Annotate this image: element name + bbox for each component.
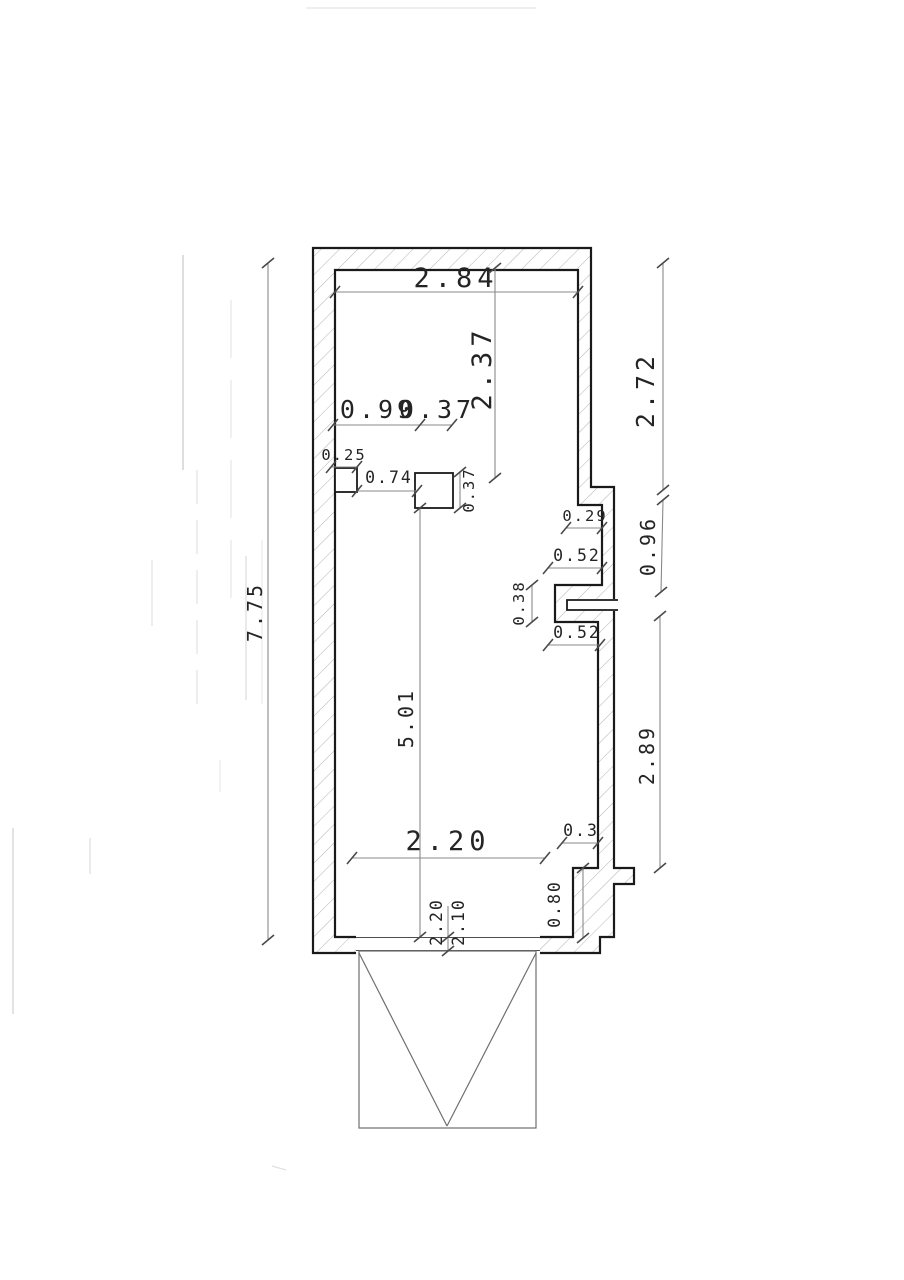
dim-label: 0.25 — [321, 446, 366, 464]
dim-label: 0.3 — [563, 821, 599, 840]
free-column — [415, 473, 453, 508]
dimension-flue-offset: 0.29 — [561, 507, 608, 534]
dimension-flue-lower-width: 0.52 — [543, 623, 605, 651]
dim-label: 0.96 — [636, 516, 660, 576]
dim-label: 2.20 — [405, 826, 490, 857]
dimension-left-total-height: 7.75 — [243, 258, 274, 945]
dim-label: 2.89 — [635, 725, 659, 785]
garage-door-panel — [359, 951, 536, 1128]
dimension-bottom-right-offset: 0.3 — [557, 821, 603, 849]
dimension-right-lower-height: 2.89 — [635, 611, 666, 873]
dim-label: 0.80 — [545, 880, 564, 928]
scan-artifacts — [13, 8, 536, 1170]
dimension-column-depth: 0.37 — [454, 467, 478, 513]
floor-plan-drawing: 2.84 2.37 0.99 0.37 0.25 0.74 0.37 0.29 … — [0, 0, 904, 1280]
dimension-top-interior-height: 2.37 — [467, 263, 501, 483]
dim-line — [661, 500, 663, 592]
dim-label: 5.01 — [394, 688, 418, 748]
dimension-niche-gap: 0.74 — [352, 468, 422, 497]
scan-streak — [272, 1166, 286, 1170]
dimension-offsets-a-b: 0.99 0.37 — [328, 395, 475, 431]
dimension-right-flue-height: 0.96 — [636, 495, 669, 597]
dim-label: 0.29 — [562, 507, 607, 525]
dimension-flue-slot-height: 0.38 — [510, 580, 538, 627]
dimension-bottom-interior-width: 2.20 — [347, 826, 550, 864]
dim-label: 0.52 — [553, 623, 601, 642]
dim-label: 2.20 — [427, 898, 446, 946]
dim-label: 2.72 — [631, 352, 660, 428]
dimension-right-upper-height: 2.72 — [631, 258, 669, 495]
dim-label: 0.74 — [365, 468, 413, 487]
dimension-interior-length: 5.01 — [394, 503, 426, 942]
dim-label: 0.37 — [399, 395, 475, 424]
dim-label: 0.38 — [510, 580, 528, 625]
dimension-flue-upper-width: 0.52 — [543, 546, 607, 574]
garage-door-symbol — [359, 951, 536, 1128]
garage-door-swing-lines — [359, 953, 536, 1126]
dim-label: 2.84 — [413, 263, 498, 294]
dim-label: 2.10 — [449, 898, 468, 946]
dim-label: 7.75 — [243, 582, 267, 642]
flue-slot — [567, 599, 620, 611]
dim-label: 0.37 — [460, 467, 478, 512]
dim-label: 0.52 — [553, 546, 601, 565]
